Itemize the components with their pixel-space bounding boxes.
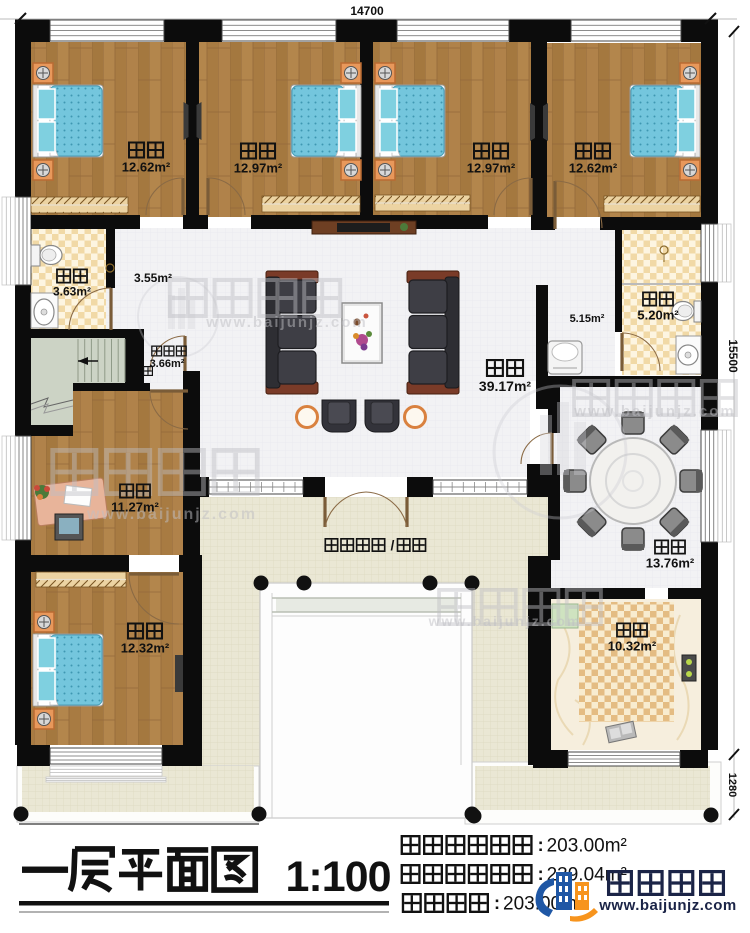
svg-text:12.97m²: 12.97m² <box>234 161 283 176</box>
svg-text:11.27m²: 11.27m² <box>111 500 159 515</box>
svg-text:13.76m²: 13.76m² <box>646 556 695 571</box>
svg-text:14700: 14700 <box>350 4 384 18</box>
svg-text::: : <box>538 835 544 855</box>
svg-text:1:100: 1:100 <box>286 853 391 901</box>
svg-text:12.62m²: 12.62m² <box>122 160 171 175</box>
svg-text:3.63m²: 3.63m² <box>53 285 91 299</box>
svg-text:12.97m²: 12.97m² <box>467 161 516 176</box>
svg-text:www.baijunjz.com: www.baijunjz.com <box>573 403 735 420</box>
svg-text:15500: 15500 <box>726 339 740 373</box>
svg-text:/: / <box>391 537 395 553</box>
svg-text:www.baijunjz.com: www.baijunjz.com <box>428 613 582 629</box>
svg-text::: : <box>494 893 500 913</box>
svg-text:5.20m²: 5.20m² <box>637 308 679 323</box>
svg-text:5.15m²: 5.15m² <box>570 313 605 325</box>
svg-text:3.55m²: 3.55m² <box>134 271 172 285</box>
svg-text:203.00m²: 203.00m² <box>547 836 627 857</box>
svg-text:www.baijunjz.com: www.baijunjz.com <box>205 314 367 331</box>
svg-text:www.baijunjz.com: www.baijunjz.com <box>598 897 736 914</box>
svg-text:39.17m²: 39.17m² <box>479 378 531 394</box>
svg-text:10.32m²: 10.32m² <box>608 639 657 654</box>
svg-text:12.32m²: 12.32m² <box>121 641 170 656</box>
svg-text::: : <box>538 864 544 884</box>
svg-text:12.62m²: 12.62m² <box>569 161 618 176</box>
svg-text:1280: 1280 <box>726 773 738 797</box>
svg-text:3.66m²: 3.66m² <box>150 358 185 370</box>
